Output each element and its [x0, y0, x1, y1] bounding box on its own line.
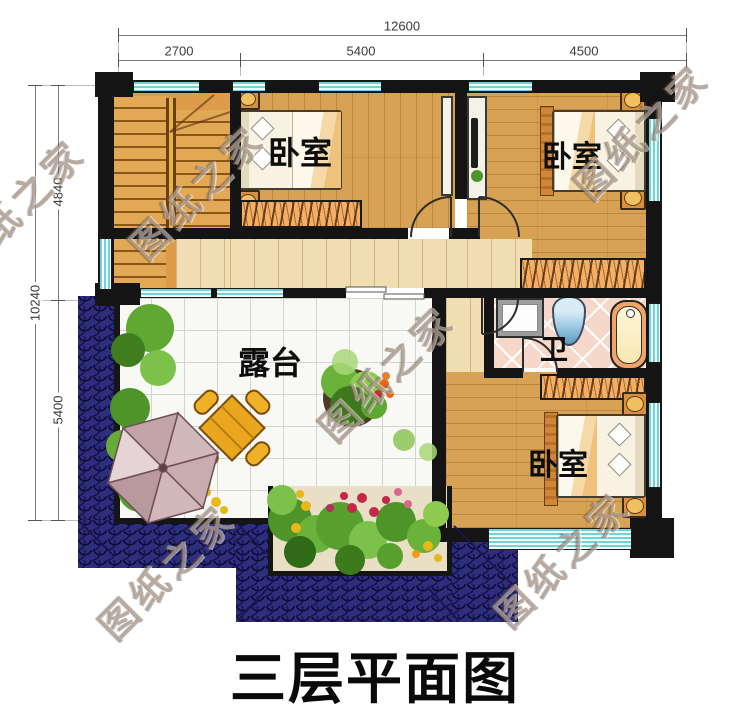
dim-total-width: 12600: [381, 19, 423, 34]
wall: [446, 528, 488, 542]
wall: [449, 228, 480, 239]
bathtub-drain: [626, 309, 635, 318]
tv-icon: [471, 118, 478, 168]
window: [133, 81, 200, 92]
dimension-line: [118, 60, 687, 61]
stair-landing: [176, 236, 230, 288]
tick: [118, 28, 119, 42]
bed-headboard: [635, 416, 644, 496]
tick: [240, 53, 241, 67]
wall: [284, 288, 346, 298]
window: [216, 288, 284, 298]
room-label-bedroom: 卧室: [528, 440, 588, 484]
wall-corner: [630, 518, 674, 558]
wall: [484, 368, 523, 378]
window: [318, 81, 382, 92]
nightstand: [622, 392, 648, 416]
tick: [51, 520, 65, 521]
window: [648, 402, 661, 488]
room-label-bathroom: 卫: [540, 328, 568, 368]
room-label-terrace: 露台: [238, 338, 302, 384]
dimension-line: [118, 35, 687, 36]
dim-segment: 5400: [344, 44, 379, 59]
wall: [455, 93, 467, 199]
wall: [446, 288, 662, 298]
plan-title: 三层平面图: [0, 634, 750, 715]
dim-total-height: 10240: [28, 282, 43, 324]
dim-segment: 2700: [162, 44, 197, 59]
window: [232, 81, 266, 92]
floor-plan-canvas: 12600 2700 5400 4500 10240 4840 5400: [0, 0, 750, 719]
tick: [51, 85, 65, 86]
dim-segment: 5400: [51, 393, 66, 428]
tick: [51, 300, 65, 301]
terrace-parapet: [114, 296, 120, 524]
dim-segment: 4500: [567, 44, 602, 59]
window: [140, 288, 212, 298]
room-label-bedroom: 卧室: [268, 128, 332, 174]
tick: [686, 28, 687, 42]
wall: [484, 298, 494, 368]
wall: [557, 368, 662, 378]
corridor-floor: [467, 239, 524, 288]
window: [99, 238, 112, 290]
window: [648, 303, 661, 363]
tick: [483, 53, 484, 67]
shower-basin: [502, 304, 538, 332]
tick: [28, 520, 42, 521]
window: [468, 81, 533, 92]
watermark: 图纸之家: [0, 125, 96, 286]
flower-bed: [268, 486, 452, 576]
tick: [28, 85, 42, 86]
wardrobe: [240, 200, 362, 228]
shower-tray: [496, 298, 544, 338]
bathtub: [610, 300, 648, 370]
wardrobe: [520, 258, 646, 292]
tick: [118, 53, 119, 67]
tv-cabinet: [441, 96, 453, 196]
